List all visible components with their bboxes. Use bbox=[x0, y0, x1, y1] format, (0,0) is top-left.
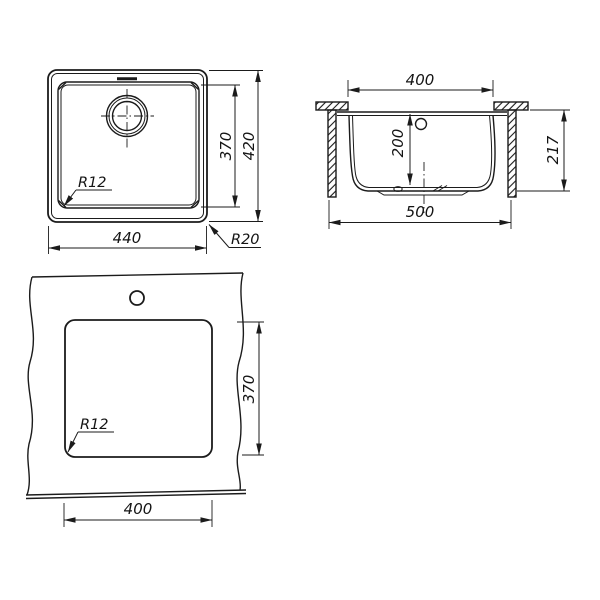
drain-icon bbox=[101, 89, 154, 150]
dim-top-width: 440 bbox=[49, 226, 207, 254]
sink-outer-edge bbox=[48, 70, 207, 222]
dim-bowl-width: 400 bbox=[348, 71, 493, 97]
break-line-left bbox=[27, 277, 33, 495]
cutout-view: R12 370 400 bbox=[26, 273, 264, 527]
cutout-opening bbox=[65, 320, 212, 457]
dim-label-370-cutout: 370 bbox=[240, 375, 258, 404]
section-view: 400 200 bbox=[316, 71, 570, 229]
overflow-hole-icon bbox=[416, 119, 427, 130]
bowl-section-profile bbox=[349, 116, 495, 196]
dim-label-500: 500 bbox=[406, 203, 435, 221]
radius-label-r12-cutout: R12 bbox=[68, 417, 114, 452]
faucet-hole-icon bbox=[130, 291, 144, 305]
countertop-left bbox=[316, 102, 348, 110]
label-r20-text: R20 bbox=[231, 232, 260, 248]
dim-label-370-top: 370 bbox=[217, 132, 235, 161]
sink-rim-section bbox=[337, 112, 507, 116]
radius-label-r20: R20 bbox=[209, 225, 261, 249]
dim-bowl-depth: 200 bbox=[389, 114, 410, 185]
radius-label-r12-top: R12 bbox=[64, 175, 112, 206]
top-view: 440 370 420 R12 R20 bbox=[48, 70, 263, 254]
dim-label-440: 440 bbox=[113, 229, 142, 247]
dim-cutout-width: 400 bbox=[64, 500, 212, 527]
label-r12-top-text: R12 bbox=[78, 175, 107, 191]
dim-label-420: 420 bbox=[240, 132, 258, 161]
label-r12-cutout-text: R12 bbox=[80, 417, 109, 433]
dim-total-height: 217 bbox=[517, 110, 570, 191]
countertop-slab bbox=[26, 273, 246, 499]
cabinet-wall-right bbox=[508, 110, 516, 197]
dim-label-200: 200 bbox=[389, 129, 407, 158]
dim-label-400-cutout: 400 bbox=[124, 500, 153, 518]
dim-overall-width: 500 bbox=[329, 200, 511, 229]
sink-dimensions-svg: 440 370 420 R12 R20 bbox=[0, 0, 600, 600]
technical-drawing: 440 370 420 R12 R20 bbox=[0, 0, 600, 600]
dim-label-217: 217 bbox=[544, 135, 562, 164]
cabinet-wall-left bbox=[328, 110, 336, 197]
countertop-right bbox=[494, 102, 528, 110]
dim-label-400-section: 400 bbox=[406, 71, 435, 89]
